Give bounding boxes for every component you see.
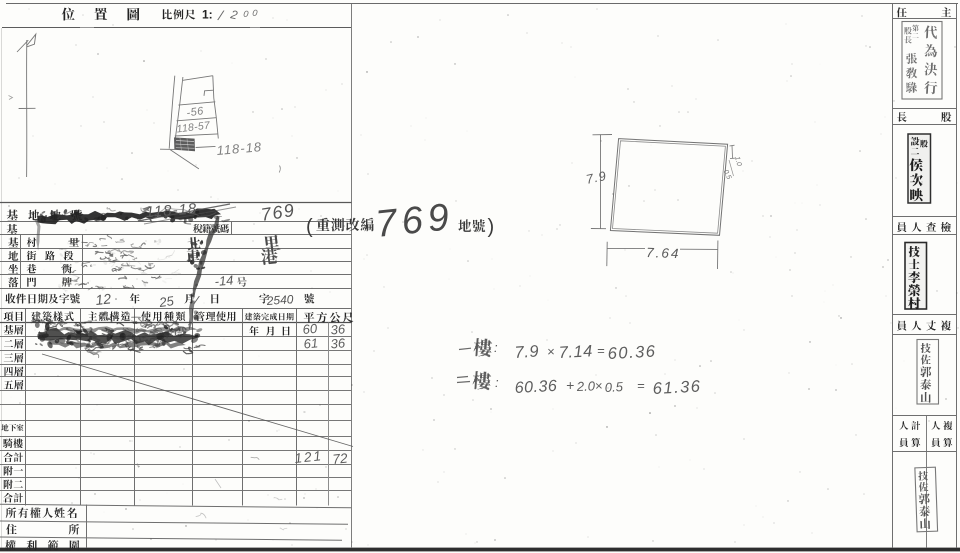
svg-text:36: 36 — [330, 335, 346, 351]
svg-text:-14: -14 — [214, 272, 234, 289]
svg-text:-56: -56 — [186, 105, 205, 119]
svg-text:0.5: 0.5 — [604, 379, 624, 395]
svg-text:7.9: 7.9 — [514, 342, 540, 362]
svg-text:2: 2 — [228, 7, 239, 22]
svg-text:1:: 1: — [202, 8, 213, 22]
svg-text:=: = — [637, 378, 645, 393]
svg-text:7.64: 7.64 — [646, 245, 681, 261]
svg-text:7.14: 7.14 — [558, 342, 593, 362]
svg-text:60.36: 60.36 — [514, 378, 557, 397]
svg-text:25: 25 — [157, 293, 175, 310]
svg-text::: : — [494, 340, 498, 355]
svg-text::: : — [495, 375, 499, 390]
svg-text:60.36: 60.36 — [607, 342, 657, 363]
svg-text:=: = — [597, 343, 605, 358]
svg-text:): ) — [488, 216, 495, 238]
svg-text:0.5: 0.5 — [722, 169, 733, 181]
svg-text:61.36: 61.36 — [652, 377, 702, 398]
svg-text:0: 0 — [252, 8, 258, 19]
svg-text:/: / — [217, 7, 226, 24]
svg-text:2.0×: 2.0× — [576, 378, 603, 394]
svg-text:769: 769 — [374, 196, 456, 246]
svg-text:×: × — [547, 344, 555, 359]
svg-text:1.0: 1.0 — [733, 156, 742, 167]
svg-text:61: 61 — [303, 335, 319, 351]
svg-text:2540: 2540 — [265, 292, 294, 308]
svg-text:0: 0 — [243, 9, 249, 20]
svg-text:118-18: 118-18 — [216, 139, 263, 158]
svg-text:121: 121 — [294, 448, 324, 466]
svg-text:12: 12 — [95, 290, 112, 308]
svg-text:7.9: 7.9 — [585, 168, 609, 187]
svg-text:(: ( — [306, 216, 313, 238]
svg-text:72: 72 — [332, 450, 349, 467]
svg-text:118-57: 118-57 — [176, 119, 212, 135]
svg-text:+: + — [566, 377, 574, 393]
